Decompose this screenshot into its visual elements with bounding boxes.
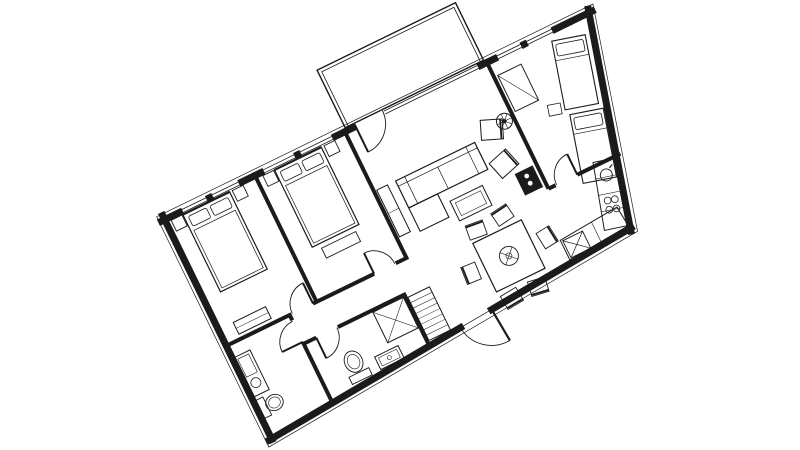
floor-plan-page — [0, 0, 800, 450]
floor-plan-drawing — [0, 0, 800, 450]
wall-bathleft-seg — [290, 315, 293, 320]
paper-background — [0, 0, 800, 450]
